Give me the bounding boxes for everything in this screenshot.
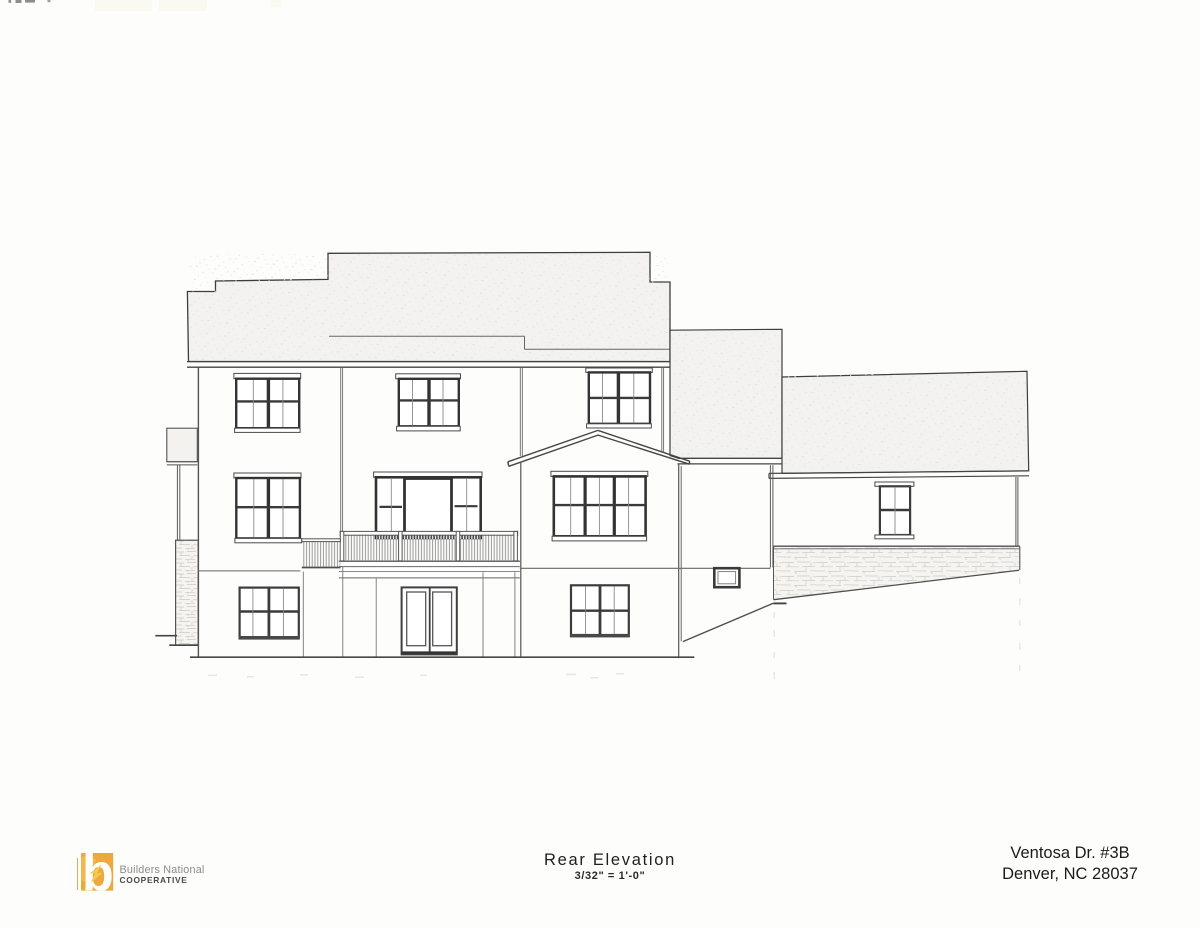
- svg-text:b: b: [82, 853, 114, 891]
